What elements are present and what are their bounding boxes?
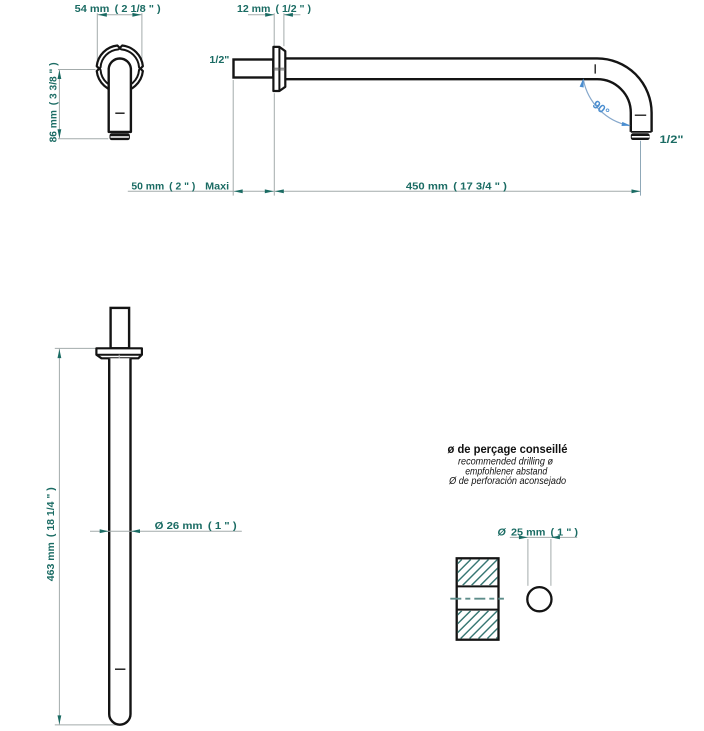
svg-text:Ø: Ø bbox=[498, 527, 507, 539]
svg-text:12 mm ( 1/2 " ): 12 mm ( 1/2 " ) bbox=[237, 3, 311, 15]
svg-text:450 mm ( 17 3/4 " ): 450 mm ( 17 3/4 " ) bbox=[406, 180, 507, 192]
svg-text:463 mm ( 18 1/4 " ): 463 mm ( 18 1/4 " ) bbox=[45, 487, 57, 581]
svg-text:1/2": 1/2" bbox=[660, 134, 684, 146]
svg-text:ø de perçage conseillé: ø de perçage conseillé bbox=[448, 442, 568, 456]
svg-text:Ø de perforación aconsejado: Ø de perforación aconsejado bbox=[448, 475, 566, 487]
svg-text:54 mm ( 2 1/8 " ): 54 mm ( 2 1/8 " ) bbox=[75, 3, 161, 15]
svg-text:86 mm ( 3 3/8 " ): 86 mm ( 3 3/8 " ) bbox=[48, 62, 60, 142]
svg-text:Maxi: Maxi bbox=[205, 180, 229, 192]
svg-text:50 mm ( 2 " ): 50 mm ( 2 " ) bbox=[131, 180, 195, 192]
svg-text:1/2": 1/2" bbox=[209, 54, 229, 66]
svg-text:Ø 26 mm ( 1 " ): Ø 26 mm ( 1 " ) bbox=[155, 520, 237, 532]
